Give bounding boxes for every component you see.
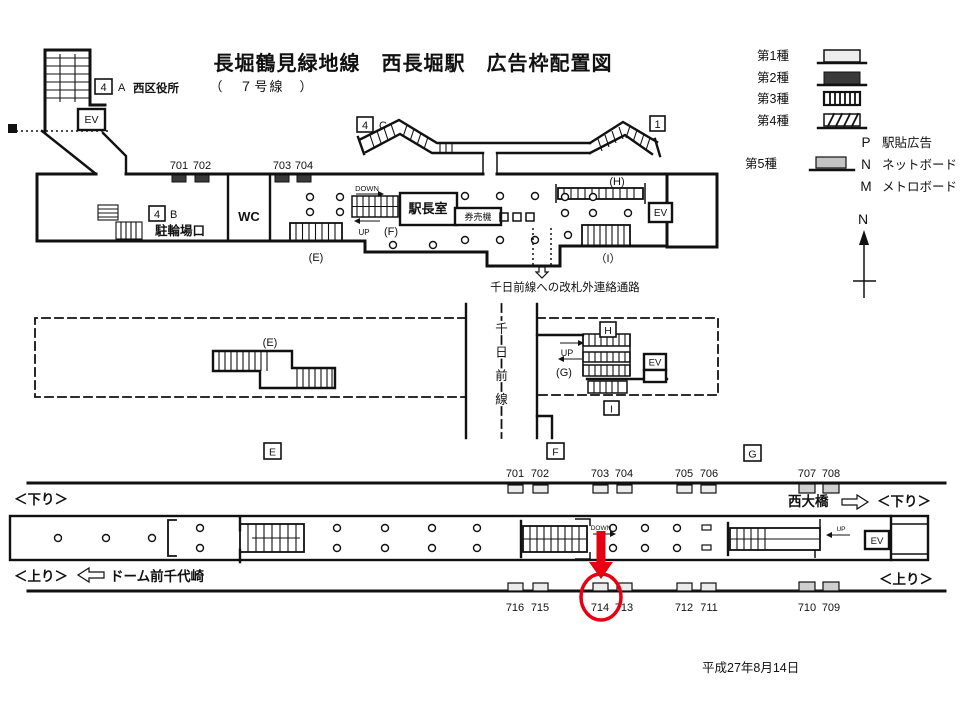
up-direction-right: ＜上り＞ xyxy=(879,572,933,587)
legend-type1-label: 第1種 xyxy=(757,49,789,63)
pf-ad-715: 715 xyxy=(531,602,549,614)
exit-1-number: 1 xyxy=(654,119,660,131)
up-label-platform: UP xyxy=(836,526,845,533)
stairs-down-up-concourse xyxy=(352,196,398,217)
up-arrow-concourse xyxy=(354,218,360,224)
box-i-label: I xyxy=(610,404,613,416)
pf-ad-712: 712 xyxy=(675,602,693,614)
upper-ad-boxes xyxy=(508,484,839,493)
ticket-gates xyxy=(500,213,534,221)
pf-ad-701: 701 xyxy=(506,468,524,480)
platform-center-stairs xyxy=(521,519,590,559)
legend-m-label: メトロボード xyxy=(882,180,957,194)
box-e-label: E xyxy=(269,447,276,459)
legend-type2-label: 第2種 xyxy=(757,71,789,85)
elevator-platform-label: EV xyxy=(871,536,884,547)
passage-down-arrow xyxy=(536,267,548,278)
pf-ad-709: 709 xyxy=(822,602,840,614)
exit-4c-corridor xyxy=(358,120,590,174)
legend-p-label: 駅貼広告 xyxy=(882,135,932,150)
stairs-e-mezzanine xyxy=(213,351,335,388)
platform-left-stairs xyxy=(240,518,304,562)
pf-ad-705: 705 xyxy=(675,468,693,480)
concourse-ad-boxes xyxy=(172,175,311,182)
exit-4a-corridor xyxy=(42,131,126,174)
passage-dotted-lines xyxy=(533,228,551,266)
legend-p-key: P xyxy=(861,135,870,150)
station-diagram: 長堀鶴見緑地線 西長堀駅 広告枠配置図 （ ７号線 ） 第1種 第2種 第3種 … xyxy=(0,0,960,720)
exit-4c-number: 4 xyxy=(362,120,368,132)
label-g-mezzanine: (G) xyxy=(556,367,572,379)
box-f-label: F xyxy=(552,447,558,459)
legend-type1-icon xyxy=(824,50,860,62)
concourse-right-room xyxy=(667,174,717,247)
ad-701-label: 701 xyxy=(170,160,188,172)
exit-4b-letter: B xyxy=(170,209,177,221)
stairs-h-concourse xyxy=(556,183,645,204)
platform-board-marks xyxy=(702,525,711,550)
next-station-right: 西大橋 xyxy=(788,493,829,509)
date-label: 平成27年8月14日 xyxy=(702,661,799,675)
exit-4a-letter: A xyxy=(118,82,126,94)
up-label-concourse: UP xyxy=(358,228,369,237)
sennichimae-line-label: 千日前線 xyxy=(494,322,510,416)
label-e-mezzanine: (E) xyxy=(263,337,278,349)
compass: N xyxy=(853,211,876,298)
legend-type3-label: 第3種 xyxy=(757,92,789,106)
stairs-i-concourse xyxy=(582,225,630,246)
label-i-concourse: （I） xyxy=(595,252,620,265)
pf-ad-706: 706 xyxy=(700,468,718,480)
concourse-map: 4 A 西区役所 EV 4 B 駐輪場口 WC xyxy=(8,50,717,294)
up-direction-left: ＜上り＞ xyxy=(14,569,68,584)
platform-outline xyxy=(10,516,928,560)
legend-type2-icon xyxy=(824,72,860,84)
ad-703-label: 703 xyxy=(273,160,291,172)
legend-type5-icon xyxy=(816,157,846,168)
platform-left-bracket xyxy=(168,520,176,556)
up-arrow-platform xyxy=(826,532,832,538)
arrow-right-outline xyxy=(842,495,868,509)
exit-4a-number: 4 xyxy=(100,82,106,94)
pf-ad-703: 703 xyxy=(591,468,609,480)
label-f-concourse: (F) xyxy=(384,226,398,238)
label-e-concourse: (E) xyxy=(309,252,324,264)
wc-label: WC xyxy=(238,209,260,224)
legend: 第1種 第2種 第3種 第4種 P 駅貼広告 第5種 N ネットボード M メト… xyxy=(745,49,957,194)
stairs-e-concourse xyxy=(290,223,342,241)
legend-n-key: N xyxy=(861,157,871,172)
box-h-label: H xyxy=(604,325,612,337)
exit-4b-stairs xyxy=(98,205,142,239)
mezzanine-map: (E) UP (G) EV H I E F xyxy=(35,304,761,461)
exit-4c-letter: C xyxy=(379,120,387,132)
exit-4a-stairs xyxy=(45,54,90,102)
compass-arrow-head xyxy=(859,230,869,245)
ad-704-label: 704 xyxy=(295,160,313,172)
legend-type5-label: 第5種 xyxy=(745,157,777,171)
pf-ad-716: 716 xyxy=(506,602,524,614)
elevator-top-label: EV xyxy=(84,114,98,126)
arrow-left-outline xyxy=(78,568,104,582)
passage-note: 千日前線への改札外連絡通路 xyxy=(490,280,640,294)
pf-ad-710: 710 xyxy=(798,602,816,614)
legend-type4-label: 第4種 xyxy=(757,114,789,128)
diagram-page: 長堀鶴見緑地線 西長堀駅 広告枠配置図 （ ７号線 ） 第1種 第2種 第3種 … xyxy=(0,0,960,720)
pf-ad-707: 707 xyxy=(798,468,816,480)
page-title: 長堀鶴見緑地線 西長堀駅 広告枠配置図 xyxy=(214,51,613,75)
elevator-concourse-label: EV xyxy=(654,208,668,219)
room-divider-walls xyxy=(228,174,270,241)
platform-map: 701 702 703 704 705 706 707 708 ＜下り＞ 西大橋… xyxy=(10,468,945,620)
next-station-left: ドーム前千代崎 xyxy=(110,568,205,584)
elevator-mezzanine-shaft xyxy=(644,370,666,382)
down-direction-left: ＜下り＞ xyxy=(14,492,68,507)
pf-ad-702: 702 xyxy=(531,468,549,480)
label-h-concourse: (H) xyxy=(609,176,624,188)
boundary-tick xyxy=(8,124,17,133)
legend-n-label: ネットボード xyxy=(882,158,957,172)
platform-right-stairs xyxy=(728,519,820,558)
ticket-machine-label: 券売機 xyxy=(464,211,491,222)
pf-ad-708: 708 xyxy=(822,468,840,480)
elevator-mezzanine-label: EV xyxy=(649,358,662,369)
stairs-g-mezzanine xyxy=(537,334,667,438)
station-office-label: 駅長室 xyxy=(407,201,447,216)
page-subtitle: （ ７号線 ） xyxy=(209,79,314,94)
legend-m-key: M xyxy=(860,179,871,194)
ward-office-label: 西区役所 xyxy=(133,81,179,95)
compass-n-label: N xyxy=(858,211,868,227)
exit-4b-number: 4 xyxy=(154,209,160,221)
pf-ad-714: 714 xyxy=(591,602,609,614)
ad-702-label: 702 xyxy=(193,160,211,172)
pf-ad-711: 711 xyxy=(700,602,718,614)
highlight-arrow xyxy=(589,531,613,579)
box-g-label: G xyxy=(748,449,756,461)
down-label-platform: DOWN xyxy=(591,525,612,532)
bicycle-entrance-label: 駐輪場口 xyxy=(155,223,205,238)
mezzanine-dashed-left xyxy=(35,318,466,397)
up-label-mezzanine: UP xyxy=(561,348,574,358)
down-direction-right: ＜下り＞ xyxy=(877,494,931,509)
pf-ad-704: 704 xyxy=(615,468,633,480)
down-label-concourse: DOWN xyxy=(355,184,379,193)
